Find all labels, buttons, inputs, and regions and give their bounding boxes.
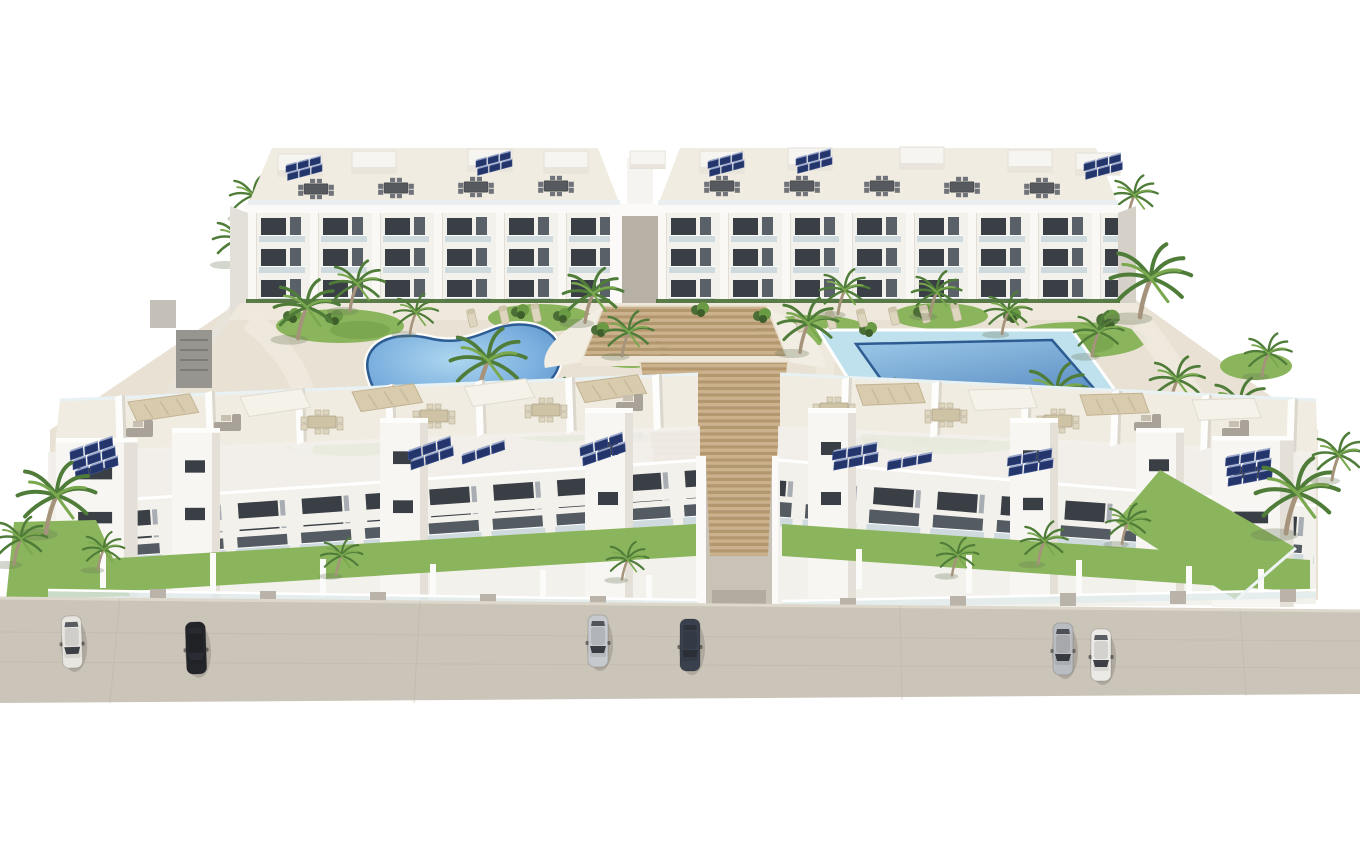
- tower: [585, 408, 633, 598]
- apartment-complex-aerial-render: [0, 0, 1360, 850]
- roof-glass-balustrade: [248, 200, 620, 205]
- back-left-end-wall: [230, 206, 248, 316]
- roofbox: [544, 151, 588, 173]
- back-left-facade: [248, 213, 620, 305]
- central-passage: [696, 456, 782, 608]
- roofbox: [1008, 150, 1052, 172]
- tdiv: [652, 374, 664, 431]
- passage-gate: [712, 590, 766, 604]
- roof-glass-balustrade: [658, 200, 1118, 205]
- utility-box: [150, 300, 176, 328]
- roofbox: [352, 151, 396, 173]
- roofbox: [900, 147, 944, 169]
- roofbox: [630, 151, 665, 169]
- passage-stairs: [706, 462, 772, 556]
- back-right-facade: [658, 213, 1118, 305]
- tower: [808, 408, 856, 598]
